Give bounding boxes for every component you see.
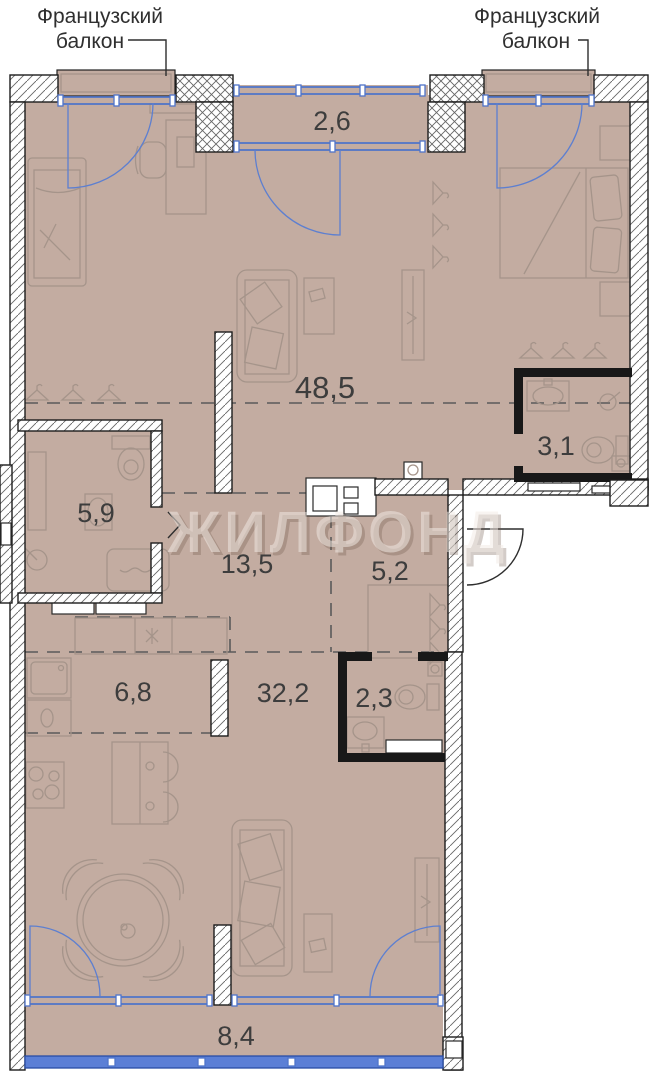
floor-fill (25, 85, 632, 1058)
balcony-left-line2: балкон (56, 30, 124, 53)
room-label-living-open: 48,5 (295, 370, 355, 405)
floor-plan: ЖИЛФОНД ЖИЛФОНД 2,6 48,5 3,1 5,9 13,5 5,… (0, 0, 651, 1080)
balcony-left-line1: Французский (37, 5, 163, 28)
watermark-text: ЖИЛФОНД (167, 500, 509, 565)
balcony-right-line2: балкон (502, 30, 570, 53)
balcony-right-line1: Французский (474, 5, 600, 28)
room-label-bathroom-left: 5,9 (77, 498, 115, 528)
room-label-loggia: 2,6 (313, 106, 351, 136)
balcony-left-parapet (57, 70, 175, 96)
room-label-kitchen: 6,8 (114, 677, 152, 707)
balcony-label-right: Французский балкон (474, 5, 600, 76)
room-label-balcony-bottom: 8,4 (217, 1021, 255, 1051)
balcony-label-left: Французский балкон (37, 5, 166, 76)
room-label-bathroom-right: 3,1 (537, 431, 575, 461)
room-label-living-lower: 32,2 (257, 678, 310, 708)
room-label-wc: 2,3 (355, 683, 393, 713)
watermark: ЖИЛФОНД ЖИЛФОНД (167, 500, 512, 568)
room-label-hallway: 5,2 (371, 556, 409, 586)
floor-plan-canvas: ЖИЛФОНД ЖИЛФОНД 2,6 48,5 3,1 5,9 13,5 5,… (0, 0, 651, 1080)
room-label-corridor: 13,5 (221, 549, 274, 579)
balcony-right-parapet (482, 70, 595, 96)
